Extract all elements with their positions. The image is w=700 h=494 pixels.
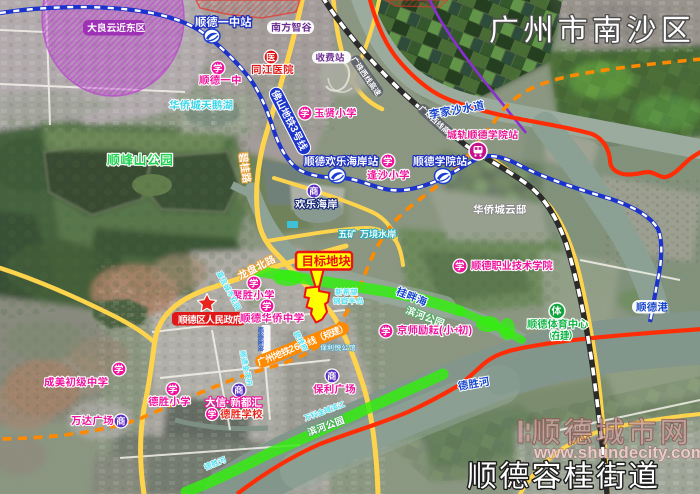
svg-text:www.shundecity.com: www.shundecity.com xyxy=(533,443,700,462)
svg-text:(: ( xyxy=(439,325,443,337)
svg-text:·: · xyxy=(226,396,230,409)
svg-text:): ) xyxy=(468,325,472,337)
